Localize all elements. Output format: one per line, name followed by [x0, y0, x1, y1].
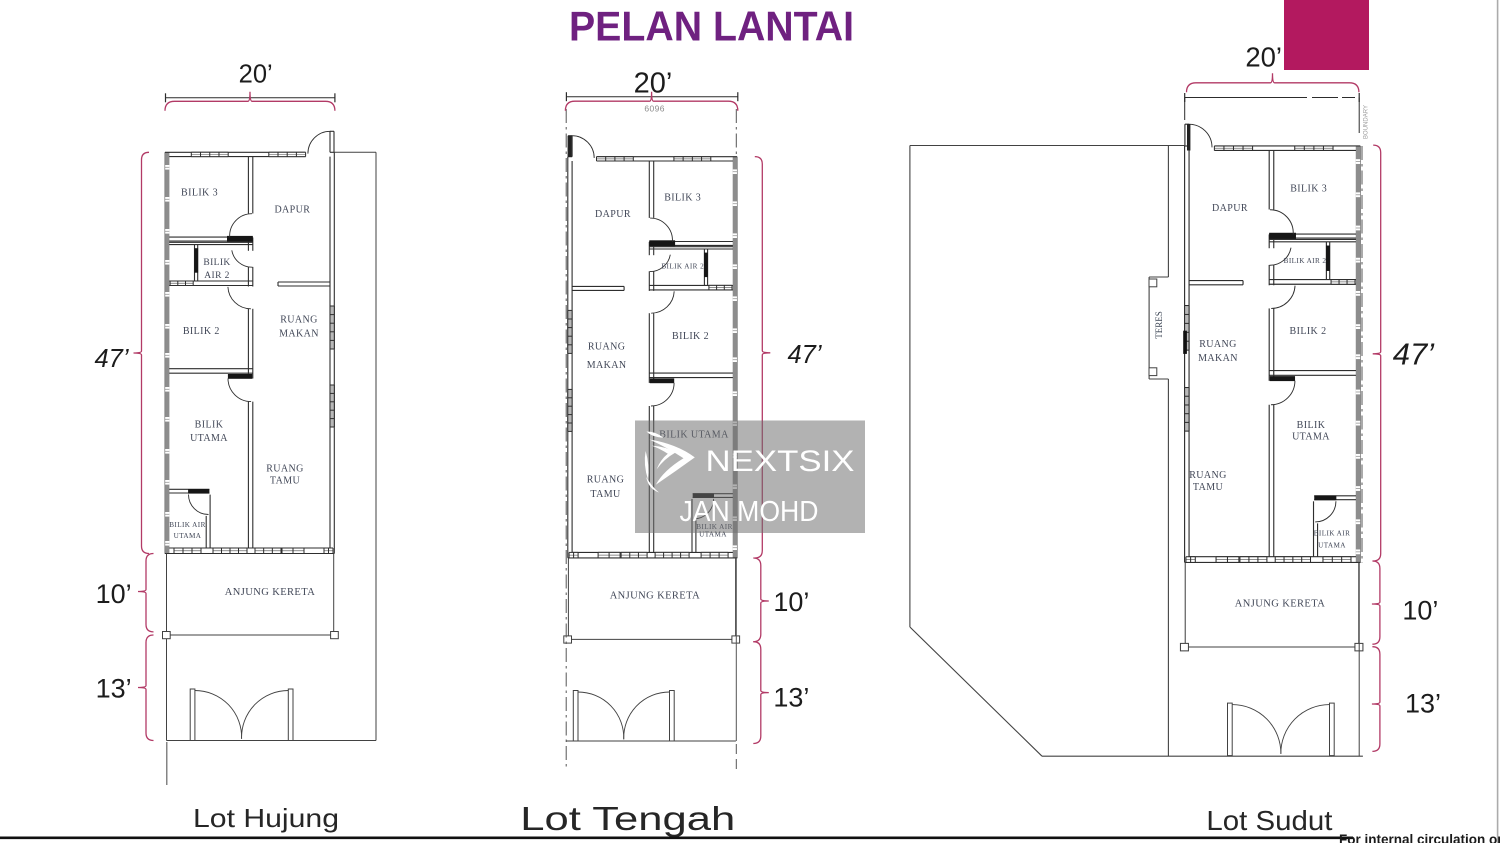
svg-text:MAKAN: MAKAN	[1198, 353, 1238, 364]
svg-text:AIR 2: AIR 2	[204, 271, 230, 281]
svg-text:TAMU: TAMU	[590, 489, 621, 500]
svg-text:Lot Hujung: Lot Hujung	[193, 803, 339, 833]
svg-text:RUANG: RUANG	[588, 342, 626, 353]
svg-text:13’: 13’	[96, 673, 132, 703]
svg-text:TAMU: TAMU	[270, 476, 301, 487]
svg-text:UTAMA: UTAMA	[190, 433, 228, 444]
svg-text:20’: 20’	[634, 68, 673, 100]
svg-text:6096: 6096	[644, 104, 665, 114]
svg-text:ANJUNG KERETA: ANJUNG KERETA	[610, 591, 700, 602]
svg-text:Lot Sudut: Lot Sudut	[1206, 805, 1332, 836]
svg-text:DAPUR: DAPUR	[1212, 203, 1248, 214]
svg-text:20’: 20’	[1245, 42, 1282, 73]
svg-text:BILIK 2: BILIK 2	[183, 326, 220, 337]
svg-text:BILIK 3: BILIK 3	[1290, 184, 1327, 195]
svg-text:BILIK 3: BILIK 3	[181, 188, 218, 199]
svg-text:BILIK AIR: BILIK AIR	[169, 521, 206, 529]
svg-text:10’: 10’	[773, 587, 809, 617]
svg-text:47’: 47’	[94, 345, 128, 373]
svg-text:BILIK AIR: BILIK AIR	[1314, 530, 1351, 538]
svg-text:For internal circulation only: For internal circulation only	[1339, 832, 1500, 843]
svg-text:MAKAN: MAKAN	[279, 329, 319, 340]
svg-text:13’: 13’	[773, 683, 809, 713]
svg-text:BILIK: BILIK	[195, 420, 224, 431]
svg-text:Lot Tengah: Lot Tengah	[520, 800, 735, 837]
svg-text:TAMU: TAMU	[1193, 482, 1224, 493]
svg-text:ANJUNG KERETA: ANJUNG KERETA	[225, 587, 315, 598]
svg-text:BILIK 2: BILIK 2	[1290, 326, 1327, 337]
svg-text:BILIK 2: BILIK 2	[672, 331, 709, 342]
svg-text:RUANG: RUANG	[1189, 470, 1227, 481]
svg-text:RUANG: RUANG	[280, 315, 318, 326]
svg-text:47’: 47’	[1393, 337, 1435, 372]
svg-text:RUANG: RUANG	[1199, 339, 1237, 350]
svg-text:UTAMA: UTAMA	[1318, 542, 1346, 550]
svg-text:NEXTSIX: NEXTSIX	[706, 445, 855, 478]
svg-text:20’: 20’	[239, 60, 273, 88]
svg-text:10’: 10’	[96, 579, 132, 609]
svg-text:ANJUNG KERETA: ANJUNG KERETA	[1235, 599, 1325, 610]
svg-text:47’: 47’	[787, 341, 821, 369]
svg-text:UTAMA: UTAMA	[174, 532, 202, 540]
svg-text:TERES: TERES	[1154, 311, 1164, 339]
svg-text:RUANG: RUANG	[587, 475, 625, 486]
svg-text:UTAMA: UTAMA	[1292, 432, 1330, 443]
svg-text:13’: 13’	[1405, 688, 1441, 718]
svg-text:PELAN LANTAI: PELAN LANTAI	[569, 3, 854, 50]
svg-text:DAPUR: DAPUR	[274, 205, 310, 216]
svg-text:DAPUR: DAPUR	[595, 209, 631, 220]
svg-text:JAN MOHD: JAN MOHD	[680, 496, 819, 528]
svg-text:RUANG: RUANG	[266, 464, 304, 475]
svg-text:BILIK AIR 2: BILIK AIR 2	[661, 262, 704, 270]
svg-text:BILIK: BILIK	[203, 258, 230, 268]
svg-text:MAKAN: MAKAN	[587, 360, 627, 371]
svg-text:BILIK AIR 2: BILIK AIR 2	[1284, 257, 1327, 265]
svg-text:10’: 10’	[1402, 596, 1438, 626]
svg-text:BOUNDARY: BOUNDARY	[1364, 105, 1370, 139]
svg-text:BILIK 3: BILIK 3	[664, 193, 701, 204]
svg-text:BILIK: BILIK	[1297, 420, 1326, 431]
